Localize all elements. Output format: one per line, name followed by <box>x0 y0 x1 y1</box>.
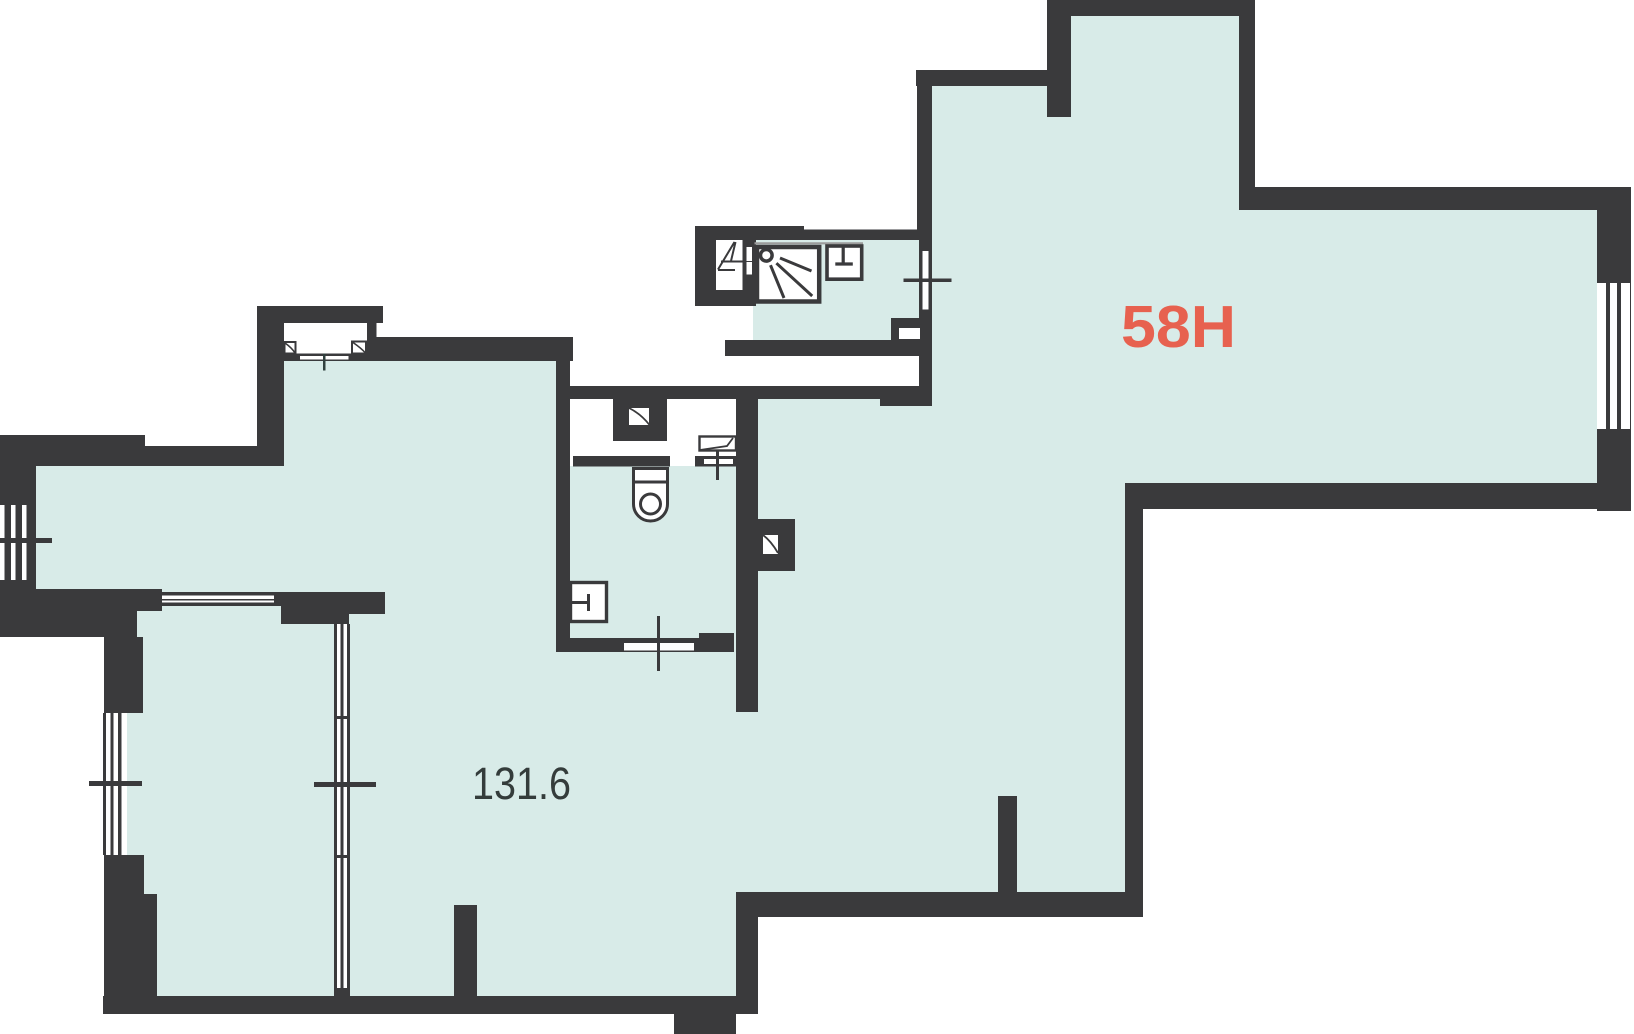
svg-text:131.6: 131.6 <box>472 758 571 809</box>
svg-text:58H: 58H <box>1121 294 1236 360</box>
